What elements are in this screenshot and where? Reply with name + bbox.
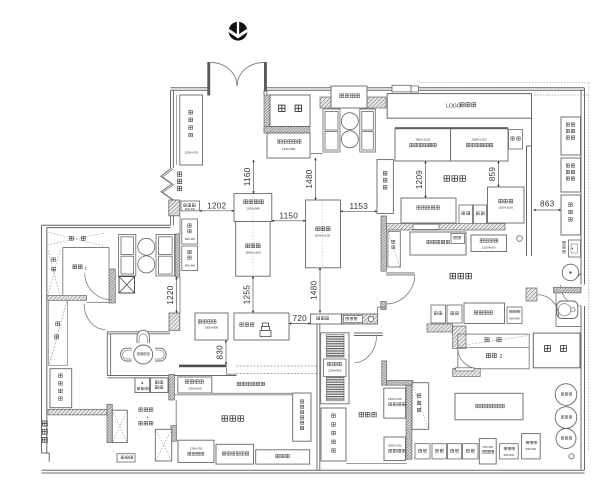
svg-text:900×400: 900×400 xyxy=(185,207,196,211)
svg-text:859: 859 xyxy=(488,167,497,182)
svg-text:600×600: 600×600 xyxy=(509,317,520,321)
svg-text:830: 830 xyxy=(215,345,224,360)
svg-text:900×400: 900×400 xyxy=(185,237,196,241)
svg-text:1800×1100: 1800×1100 xyxy=(245,251,261,255)
svg-text:1800×1100: 1800×1100 xyxy=(472,138,487,142)
svg-text:1100×1100: 1100×1100 xyxy=(498,206,513,210)
svg-text:720: 720 xyxy=(293,314,308,323)
svg-text:2300×800: 2300×800 xyxy=(328,369,342,373)
svg-text:1: 1 xyxy=(85,265,88,270)
svg-text:1800×800: 1800×800 xyxy=(205,326,219,330)
svg-text:LOGO: LOGO xyxy=(446,104,461,110)
svg-text:863: 863 xyxy=(540,200,555,209)
svg-text:1255: 1255 xyxy=(242,285,251,304)
svg-text:1209: 1209 xyxy=(415,170,424,189)
svg-text:1153: 1153 xyxy=(349,202,368,211)
svg-text:900×400: 900×400 xyxy=(185,264,196,268)
svg-text:1480: 1480 xyxy=(309,280,318,299)
svg-text:+: + xyxy=(147,415,150,420)
svg-text:3200×750: 3200×750 xyxy=(388,444,402,448)
svg-text:600×600: 600×600 xyxy=(504,453,515,457)
svg-text:2200×700: 2200×700 xyxy=(184,151,198,155)
svg-text:1160: 1160 xyxy=(243,167,252,186)
svg-text:750×450: 750×450 xyxy=(482,445,493,449)
svg-text:800×600: 800×600 xyxy=(526,447,537,451)
svg-text:1202: 1202 xyxy=(207,201,226,210)
svg-text:1220: 1220 xyxy=(166,285,175,304)
svg-text:1300×750: 1300×750 xyxy=(190,447,203,451)
svg-text:1400×650: 1400×650 xyxy=(282,147,296,151)
svg-text:2: 2 xyxy=(500,354,503,360)
svg-text:1480: 1480 xyxy=(305,169,314,188)
svg-text:2000×1100: 2000×1100 xyxy=(315,234,331,238)
svg-text:1500×700: 1500×700 xyxy=(388,397,402,401)
svg-text:1800×1100: 1800×1100 xyxy=(415,138,430,142)
svg-text:1200×600: 1200×600 xyxy=(188,387,202,391)
svg-text:1200×600: 1200×600 xyxy=(482,246,496,250)
svg-text:1150: 1150 xyxy=(279,211,298,220)
